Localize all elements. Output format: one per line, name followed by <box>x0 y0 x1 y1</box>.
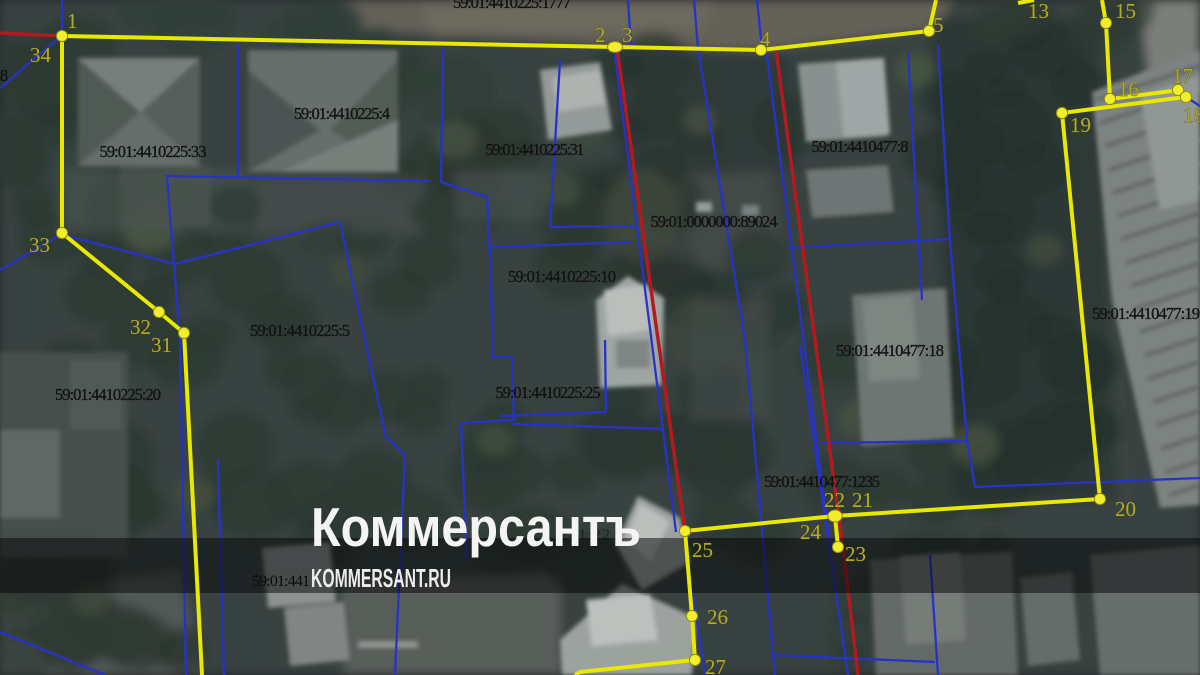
svg-text:59:01:4410225:25: 59:01:4410225:25 <box>496 383 601 402</box>
svg-text:59:01:4410225:4: 59:01:4410225:4 <box>294 104 390 123</box>
svg-text:59:01:4410477:18: 59:01:4410477:18 <box>836 341 944 360</box>
svg-text:59:01:4410477:1235: 59:01:4410477:1235 <box>764 472 880 491</box>
svg-text:27: 27 <box>705 655 726 675</box>
svg-text:24: 24 <box>800 520 822 544</box>
svg-text:3: 3 <box>622 23 633 47</box>
svg-text:25: 25 <box>692 538 713 562</box>
svg-text:17: 17 <box>1172 64 1193 88</box>
svg-text:59:01:4410225:20: 59:01:4410225:20 <box>55 385 161 404</box>
svg-text:59:01:4410225:10: 59:01:4410225:10 <box>508 267 616 286</box>
svg-text:31: 31 <box>151 333 172 357</box>
svg-text:22: 22 <box>824 488 845 512</box>
svg-text:19: 19 <box>1070 113 1091 137</box>
svg-text:1: 1 <box>67 9 78 33</box>
svg-text:32: 32 <box>130 315 151 339</box>
svg-text:34: 34 <box>30 43 52 67</box>
svg-text:59:01:4410225:33: 59:01:4410225:33 <box>100 142 207 161</box>
svg-text:13: 13 <box>1028 0 1049 23</box>
svg-text:59:01:4410477:8: 59:01:4410477:8 <box>812 137 909 156</box>
svg-text:21: 21 <box>852 488 873 512</box>
svg-text:5: 5 <box>933 13 944 37</box>
svg-text:59:01:4410477:19: 59:01:4410477:19 <box>1092 304 1200 323</box>
svg-text:8: 8 <box>0 66 8 85</box>
svg-text:2: 2 <box>595 23 606 47</box>
svg-text:23: 23 <box>845 542 866 566</box>
svg-text:18: 18 <box>1183 103 1200 127</box>
svg-text:20: 20 <box>1115 497 1136 521</box>
svg-text:16: 16 <box>1118 77 1139 101</box>
svg-text:59:01:4410225:5: 59:01:4410225:5 <box>250 321 350 340</box>
svg-text:59:01:0000000:89024: 59:01:0000000:89024 <box>651 212 778 231</box>
svg-text:33: 33 <box>29 233 50 257</box>
svg-text:15: 15 <box>1115 0 1136 23</box>
svg-text:59:01:4410225:1777: 59:01:4410225:1777 <box>453 0 571 12</box>
svg-text:KOMMERSANT.RU: KOMMERSANT.RU <box>311 563 451 593</box>
svg-text:Коммерсантъ: Коммерсантъ <box>311 496 641 558</box>
svg-text:59:01:4410225:31: 59:01:4410225:31 <box>486 140 585 159</box>
svg-text:26: 26 <box>707 605 728 629</box>
svg-text:4: 4 <box>760 27 771 51</box>
